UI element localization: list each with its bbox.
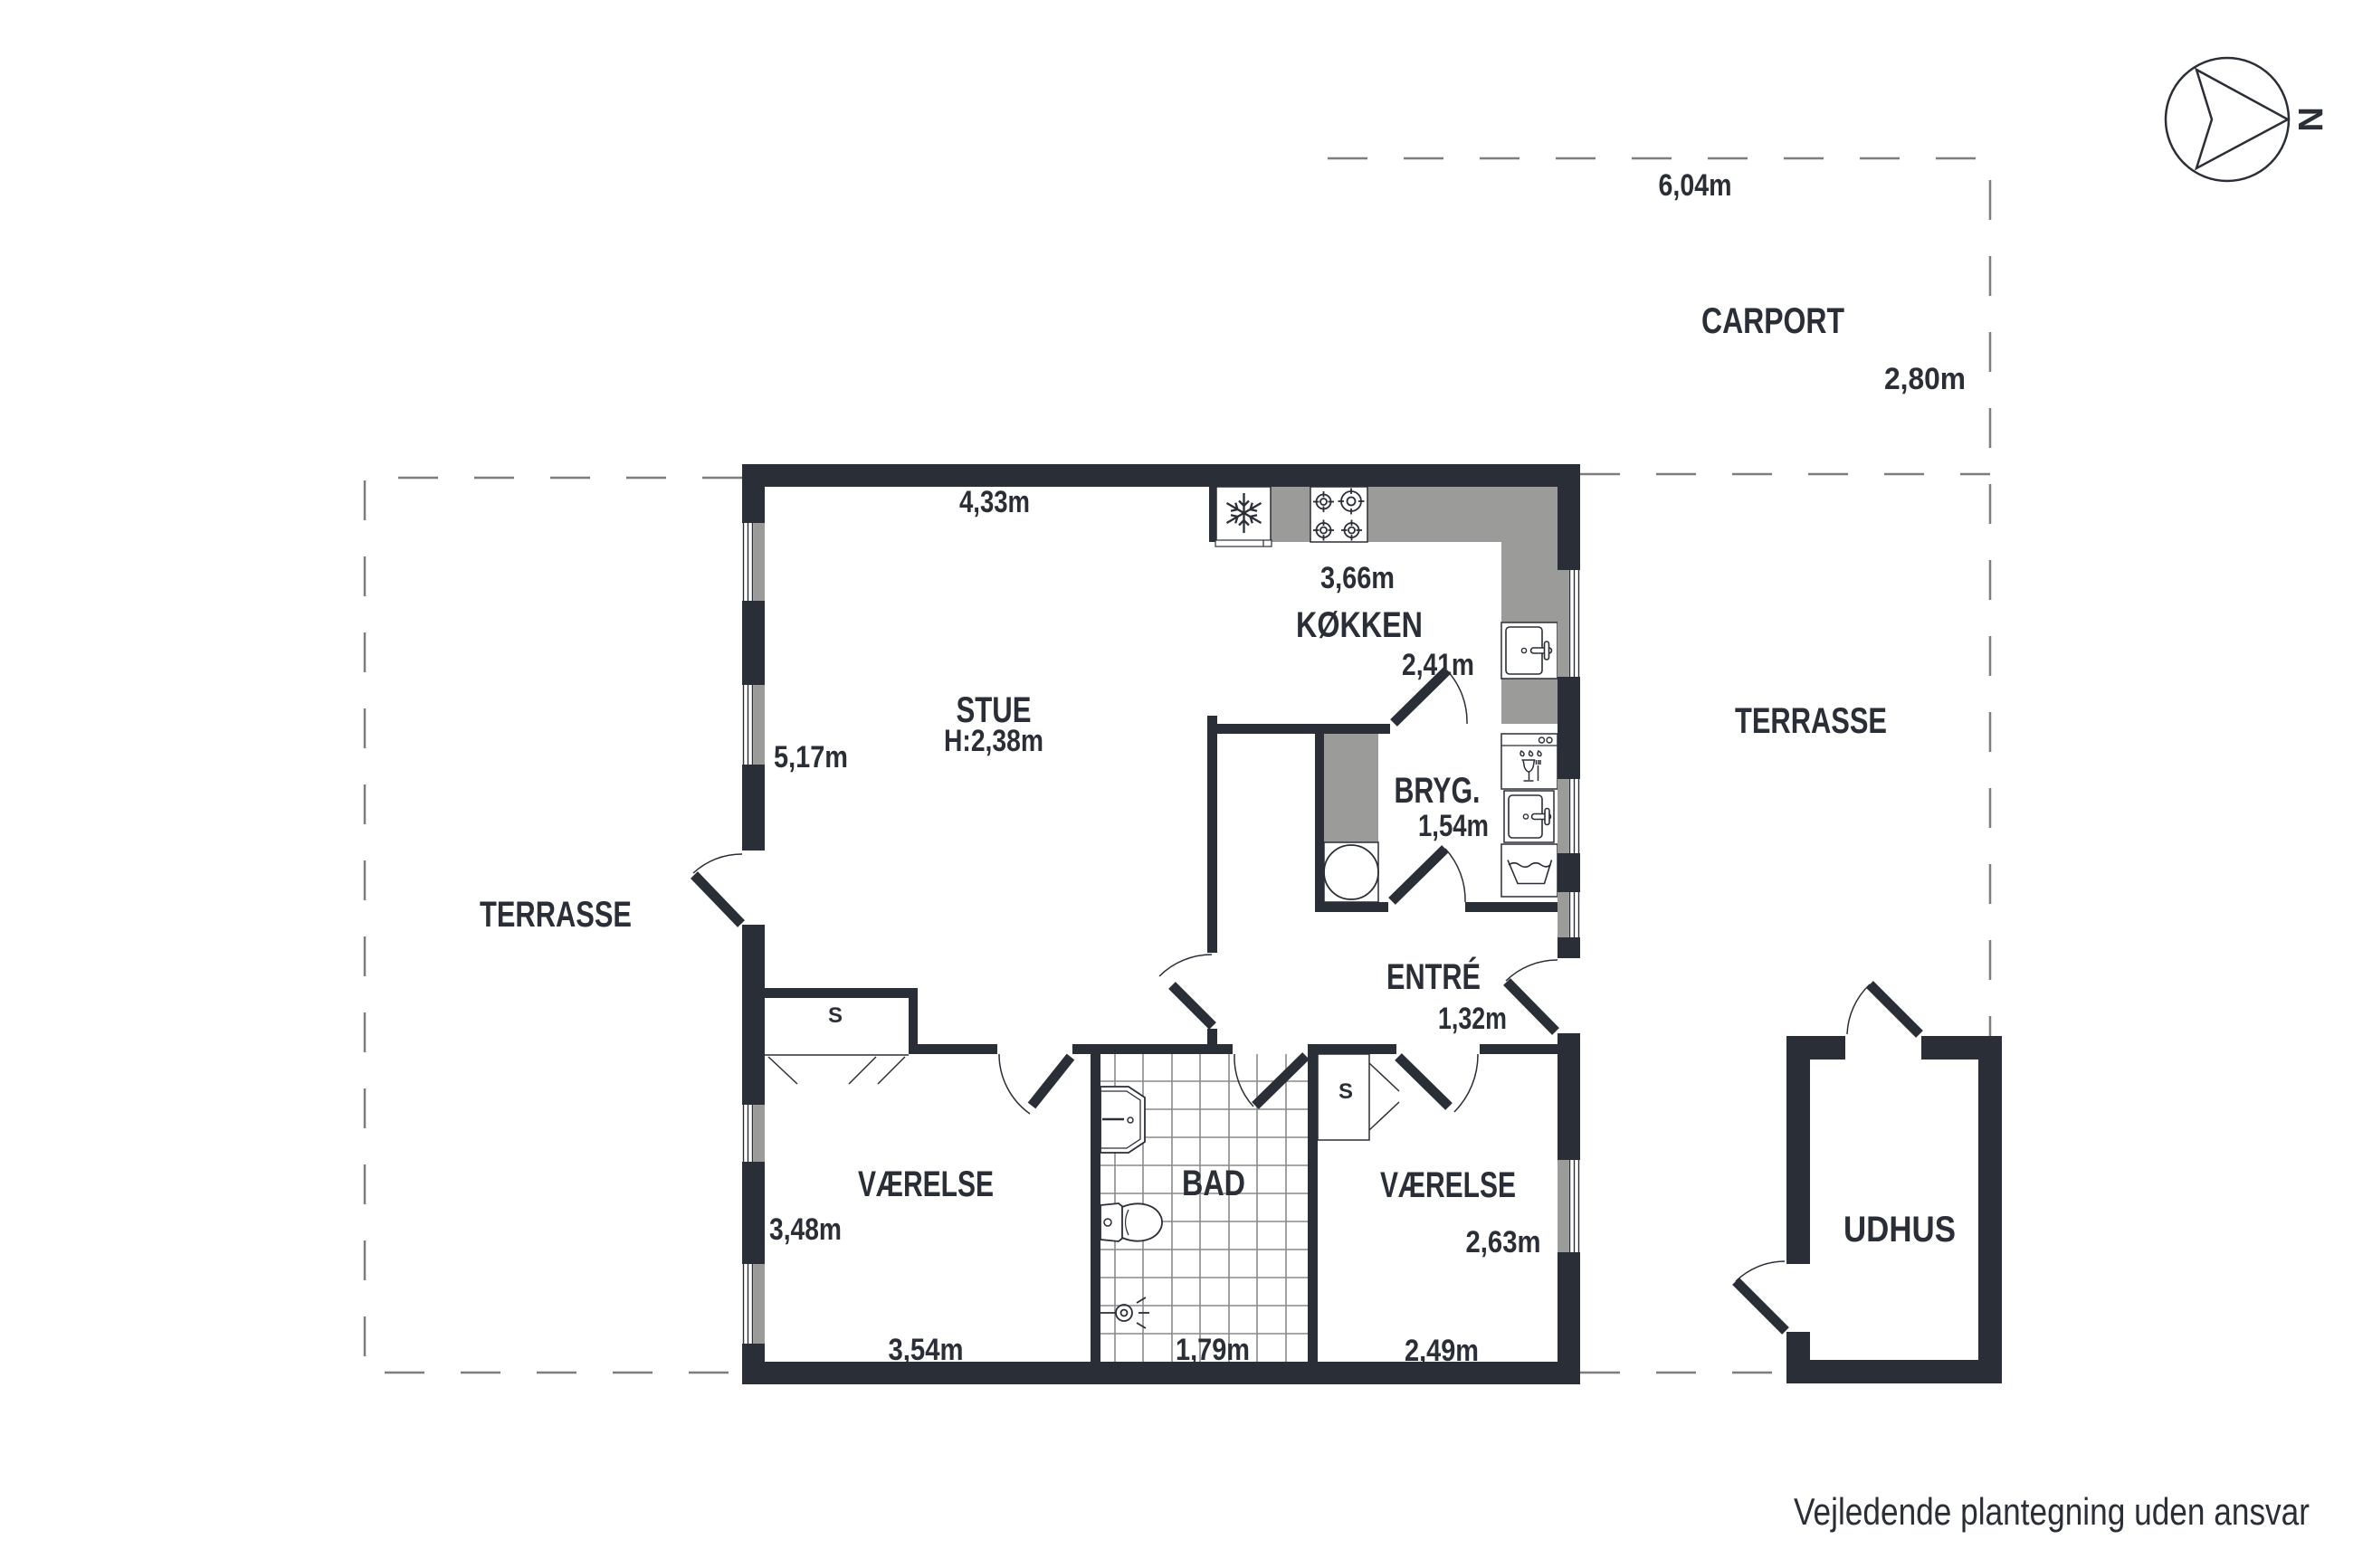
- svg-text:N: N: [2291, 107, 2329, 131]
- svg-text:5,17m: 5,17m: [774, 740, 848, 774]
- svg-text:3,54m: 3,54m: [889, 1333, 964, 1367]
- svg-text:2,63m: 2,63m: [1466, 1225, 1541, 1259]
- svg-text:Vejledende plantegning uden an: Vejledende plantegning uden ansvar: [1794, 1490, 2310, 1533]
- svg-text:6,04m: 6,04m: [1659, 168, 1732, 203]
- svg-text:BAD: BAD: [1182, 1164, 1245, 1203]
- svg-text:UDHUS: UDHUS: [1843, 1210, 1956, 1250]
- svg-text:3,48m: 3,48m: [769, 1212, 842, 1247]
- svg-text:2,41m: 2,41m: [1402, 648, 1474, 682]
- svg-text:BRYG.: BRYG.: [1395, 771, 1481, 811]
- svg-text:VÆRELSE: VÆRELSE: [1380, 1165, 1516, 1205]
- svg-text:H:2,38m: H:2,38m: [944, 724, 1043, 758]
- svg-text:1,32m: 1,32m: [1438, 1002, 1507, 1036]
- svg-text:1,54m: 1,54m: [1418, 809, 1489, 843]
- svg-text:ENTRÉ: ENTRÉ: [1386, 956, 1481, 997]
- svg-text:3,66m: 3,66m: [1320, 561, 1395, 595]
- svg-text:TERRASSE: TERRASSE: [480, 895, 632, 935]
- svg-text:2,80m: 2,80m: [1884, 362, 1966, 396]
- svg-text:S: S: [828, 1003, 843, 1028]
- svg-text:4,33m: 4,33m: [959, 485, 1030, 519]
- svg-text:2,49m: 2,49m: [1405, 1334, 1479, 1368]
- svg-text:1,79m: 1,79m: [1176, 1333, 1250, 1367]
- svg-text:KØKKEN: KØKKEN: [1296, 605, 1423, 645]
- svg-text:TERRASSE: TERRASSE: [1735, 701, 1887, 741]
- svg-text:VÆRELSE: VÆRELSE: [858, 1164, 994, 1204]
- svg-text:CARPORT: CARPORT: [1701, 301, 1844, 341]
- svg-text:S: S: [1338, 1079, 1353, 1104]
